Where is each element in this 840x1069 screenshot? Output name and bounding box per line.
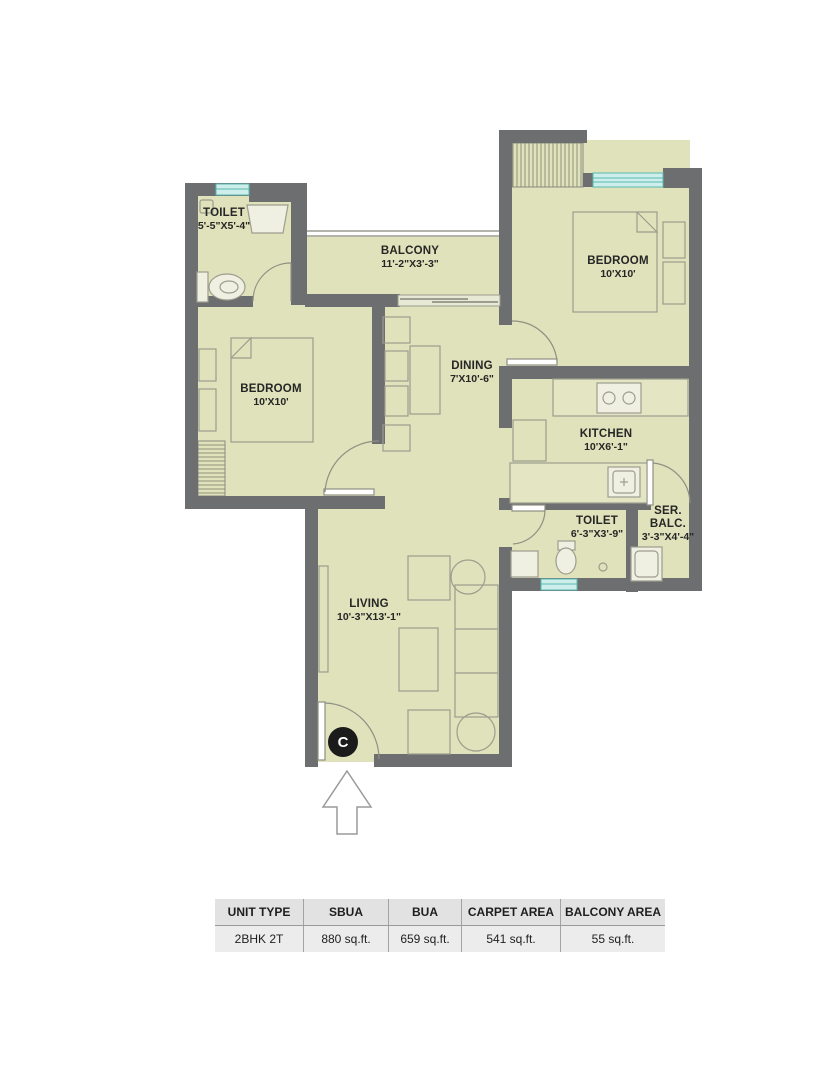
unit-badge: C [328, 727, 358, 757]
area-table-value-cell: 541 sq.ft. [462, 926, 561, 953]
area-table-value-cell: 880 sq.ft. [304, 926, 389, 953]
room-dims: 6'-3"X3'-9" [571, 528, 623, 540]
room-name: BALCONY [381, 245, 439, 258]
area-table-value-cell: 659 sq.ft. [389, 926, 462, 953]
area-table-header-cell: CARPET AREA [462, 899, 561, 926]
room-label-toilet-1: TOILET 5'-5"X5'-4" [198, 207, 250, 232]
room-dims: 10'X10' [240, 396, 301, 408]
area-table: UNIT TYPE SBUA BUA CARPET AREA BALCONY A… [215, 899, 665, 952]
room-dims: 10'X10' [587, 268, 648, 280]
area-table-header-row: UNIT TYPE SBUA BUA CARPET AREA BALCONY A… [215, 899, 665, 926]
area-table-header-cell: UNIT TYPE [215, 899, 304, 926]
bedroom-right-window [593, 173, 663, 187]
room-label-toilet-2: TOILET 6'-3"X3'-9" [571, 515, 623, 540]
wardrobe-hatch [198, 441, 225, 496]
room-name: SER. BALC. [642, 505, 694, 531]
balcony-slider-window [398, 295, 500, 306]
area-table-header-cell: BALCONY AREA [561, 899, 666, 926]
toilet2-window [541, 579, 577, 590]
room-label-service-balcony: SER. BALC. 3'-3"X4'-4" [642, 505, 694, 543]
room-name: BEDROOM [587, 255, 648, 268]
room-name: BEDROOM [240, 383, 301, 396]
room-label-bedroom-right: BEDROOM 10'X10' [587, 255, 648, 280]
room-dims: 7'X10'-6" [450, 373, 494, 385]
room-name: DINING [450, 360, 494, 373]
room-label-balcony: BALCONY 11'-2"X3'-3" [381, 245, 439, 270]
balcony-parapet [305, 231, 499, 236]
room-dims: 5'-5"X5'-4" [198, 220, 250, 232]
toilet1-window [216, 184, 249, 195]
area-table-header-cell: BUA [389, 899, 462, 926]
service-balcony-fixtures [631, 547, 662, 581]
room-name: TOILET [571, 515, 623, 528]
room-dims: 11'-2"X3'-3" [381, 258, 439, 270]
room-dims: 3'-3"X4'-4" [642, 531, 694, 543]
room-name: TOILET [198, 207, 250, 220]
area-table-value-row: 2BHK 2T 880 sq.ft. 659 sq.ft. 541 sq.ft.… [215, 926, 665, 953]
room-name: KITCHEN [580, 428, 633, 441]
room-label-dining: DINING 7'X10'-6" [450, 360, 494, 385]
room-dims: 10'X6'-1" [580, 441, 633, 453]
area-table-value-cell: 2BHK 2T [215, 926, 304, 953]
room-name: LIVING [337, 598, 401, 611]
room-label-living: LIVING 10'-3"X13'-1" [337, 598, 401, 623]
room-label-kitchen: KITCHEN 10'X6'-1" [580, 428, 633, 453]
area-table-value-cell: 55 sq.ft. [561, 926, 666, 953]
room-label-bedroom-left: BEDROOM 10'X10' [240, 383, 301, 408]
area-table-header-cell: SBUA [304, 899, 389, 926]
floor-plan-page: TOILET 5'-5"X5'-4" BALCONY 11'-2"X3'-3" … [0, 0, 840, 1069]
ledge-hatch [512, 143, 583, 187]
entrance-arrow-icon [323, 771, 371, 834]
floor-plan-drawing [0, 0, 840, 870]
room-dims: 10'-3"X13'-1" [337, 611, 401, 623]
